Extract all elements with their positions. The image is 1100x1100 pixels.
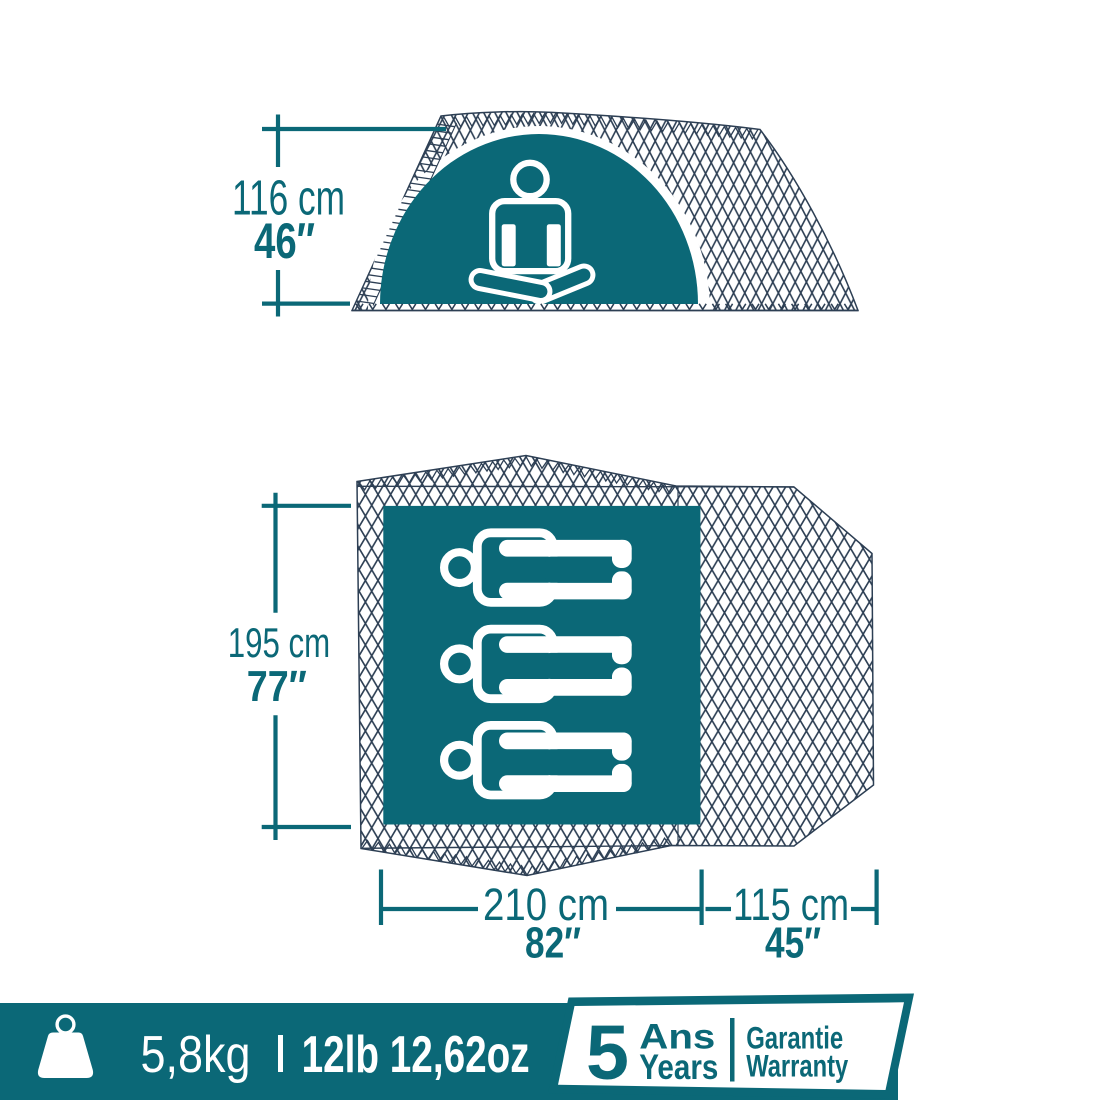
svg-text:77″: 77″ [247, 663, 307, 711]
svg-text:46″: 46″ [254, 213, 315, 269]
svg-text:12lb 12,62oz: 12lb 12,62oz [302, 1026, 530, 1084]
svg-text:195 cm: 195 cm [228, 619, 331, 666]
svg-text:82″: 82″ [525, 919, 581, 968]
svg-text:5: 5 [586, 1010, 629, 1096]
svg-text:Years: Years [639, 1048, 718, 1087]
svg-text:45″: 45″ [765, 919, 821, 968]
svg-text:Warranty: Warranty [746, 1048, 848, 1084]
svg-text:5,8kg: 5,8kg [141, 1026, 251, 1084]
